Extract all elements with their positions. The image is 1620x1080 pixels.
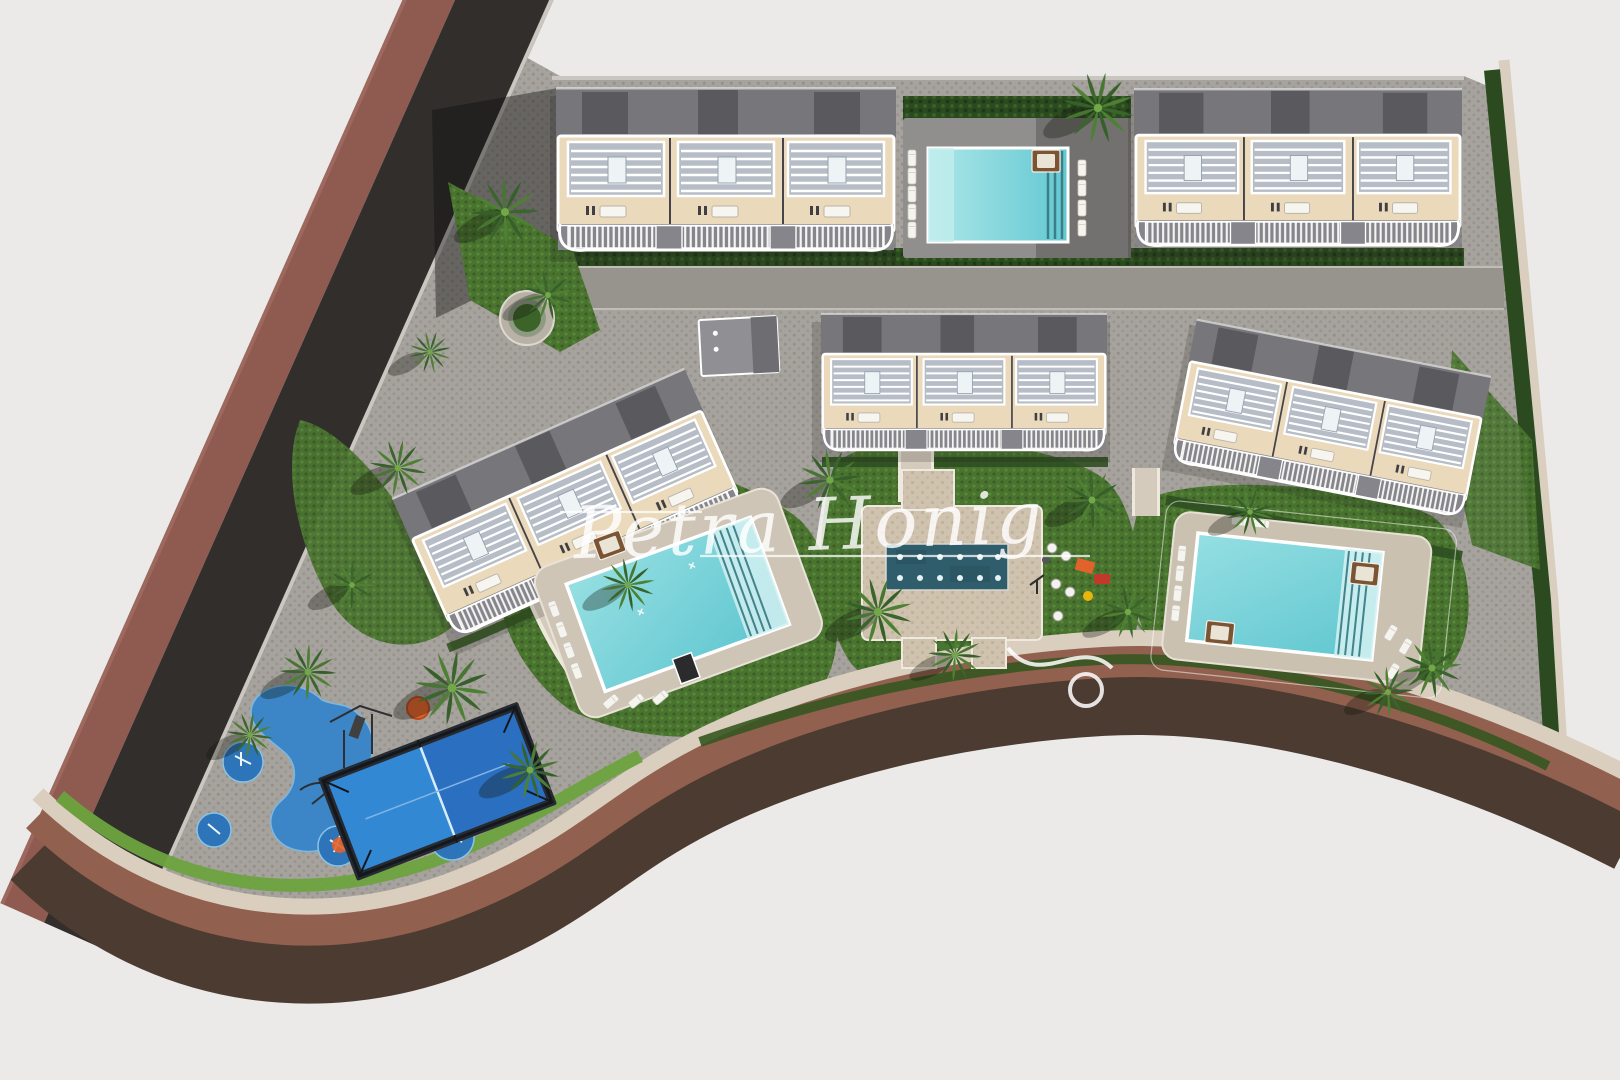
communal-structure <box>699 316 780 376</box>
townhouse-block-north-east <box>1128 88 1462 260</box>
daybed <box>1032 150 1060 172</box>
townhouse-block-north-west <box>550 87 896 262</box>
daybed <box>1350 561 1380 586</box>
service-drive <box>552 266 1504 310</box>
daybed <box>1205 621 1235 646</box>
watermark-text: Petra Honig <box>570 475 1046 575</box>
townhouse-block-center <box>812 313 1110 462</box>
site-plan-render: Petra Honig <box>0 0 1620 1080</box>
north-boundary-wall <box>552 76 1464 80</box>
